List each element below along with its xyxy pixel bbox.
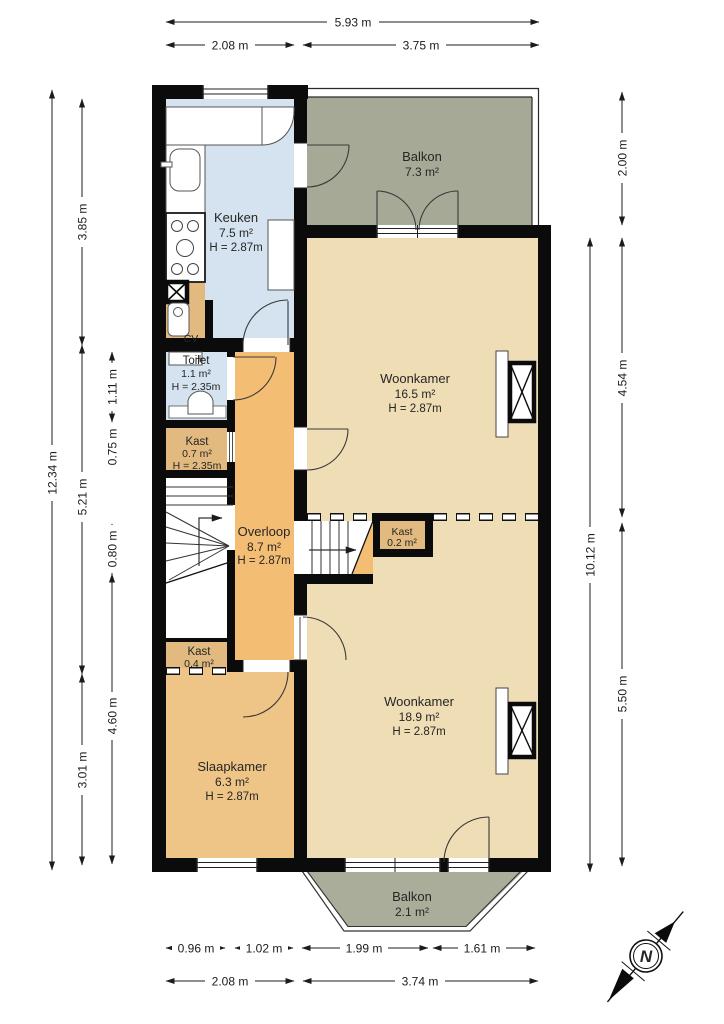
dim-bottom-outer-1: 3.74 m xyxy=(402,975,439,989)
cv-label: CV xyxy=(184,333,199,345)
overloop-area: 8.7 m² xyxy=(247,540,281,554)
keuken-area: 7.5 m² xyxy=(219,226,253,240)
dim-left-inner-2: 0.80 m xyxy=(106,531,120,568)
dim-bottom-outer-0: 2.08 m xyxy=(212,975,249,989)
stairs-opening xyxy=(227,505,235,550)
woonkamer-voor-door-opening xyxy=(294,427,307,470)
compass-north-icon: N xyxy=(595,901,695,1012)
kast-07-name: Kast xyxy=(185,436,209,448)
dim-right-total: 10.12 m xyxy=(584,533,598,576)
balkon-door-opening xyxy=(294,143,307,188)
woonkamer-achter-window xyxy=(345,858,440,872)
woonkamer-achter-height: H = 2.87m xyxy=(392,726,445,738)
faucet-icon xyxy=(161,162,172,167)
kast-04-area: 0.4 m² xyxy=(184,658,214,670)
keuken-door-opening xyxy=(243,338,290,352)
balkon-onder-door-opening xyxy=(448,858,489,872)
kast-02-area: 0.2 m² xyxy=(387,537,417,549)
kitchen-counter xyxy=(166,107,262,145)
dim-bottom-inner-2: 1.99 m xyxy=(346,942,383,956)
woonkamer-achter-name: Woonkamer xyxy=(384,694,455,709)
slaapkamer-height: H = 2.87m xyxy=(205,791,258,803)
sink-icon xyxy=(170,149,200,191)
dim-left-inner-3: 4.60 m xyxy=(106,698,120,735)
kitchen-appliance xyxy=(268,220,294,290)
dim-left-inner-0: 1.11 m xyxy=(106,369,120,405)
floorplan-drawing: Balkon 7.3 m² Keuken 7.5 m² H = 2.87m To… xyxy=(0,0,724,1024)
dim-top-seg-1: 3.75 m xyxy=(403,39,440,53)
dim-bottom-inner-3: 1.61 m xyxy=(464,942,501,956)
chimney-niche-achter xyxy=(496,688,508,774)
keuken-height: H = 2.87m xyxy=(209,242,262,254)
balkon-onder-area: 2.1 m² xyxy=(395,905,429,919)
balkon-onder-name: Balkon xyxy=(392,889,432,904)
slaapkamer-area: 6.3 m² xyxy=(215,775,249,789)
dim-left-mid-0: 3.85 m xyxy=(76,204,90,241)
woonkamer-achter-area: 18.9 m² xyxy=(399,710,440,724)
dim-left-mid-2: 3.01 m xyxy=(76,752,90,789)
toilet-bowl-icon xyxy=(188,391,213,414)
woonkamer-voor-height: H = 2.87m xyxy=(388,403,441,415)
keuken-name: Keuken xyxy=(214,210,258,225)
slaapkamer-window xyxy=(197,858,257,872)
overloop-name: Overloop xyxy=(238,524,291,539)
balkon-boven-area: 7.3 m² xyxy=(405,165,439,179)
slaapkamer-door-opening xyxy=(243,660,290,672)
keuken-window xyxy=(203,85,268,99)
overloop-height: H = 2.87m xyxy=(237,555,290,567)
dim-top-seg-0: 2.08 m xyxy=(212,39,249,53)
dim-bottom-inner-0: 0.96 m xyxy=(178,942,215,956)
toilet-area: 1.1 m² xyxy=(181,368,211,380)
dim-left-inner-1: 0.75 m xyxy=(106,429,120,466)
woonkamer-voor-name: Woonkamer xyxy=(380,371,451,386)
woonkamer-voor-area: 16.5 m² xyxy=(395,387,436,401)
stairs-floor xyxy=(166,478,227,638)
dim-right-inner-0: 2.00 m xyxy=(616,140,630,177)
compass-north-label: N xyxy=(640,947,653,966)
balkon-boven-name: Balkon xyxy=(402,149,442,164)
toilet-door-opening xyxy=(227,357,235,400)
dim-top-total: 5.93 m xyxy=(335,16,372,30)
slaapkamer-name: Slaapkamer xyxy=(197,759,267,774)
kast-07-opening xyxy=(227,432,235,462)
chimney-niche-voor xyxy=(496,351,508,437)
dim-left-mid-1: 5.21 m xyxy=(76,479,90,516)
woonkamer-achter-door-opening xyxy=(294,615,307,660)
toilet-height: H = 2.35m xyxy=(172,381,221,393)
kast-04-name: Kast xyxy=(187,646,211,658)
kast-07-height: H = 2.35m xyxy=(173,460,222,472)
dim-right-inner-2: 5.50 m xyxy=(616,676,630,713)
dim-bottom-inner-1: 1.02 m xyxy=(246,942,283,956)
kast-07-area: 0.7 m² xyxy=(182,448,212,460)
dim-right-inner-1: 4.54 m xyxy=(616,360,630,397)
dim-left-total: 12.34 m xyxy=(46,451,60,494)
toilet-name: Toilet xyxy=(183,355,211,367)
floorplan-page: Balkon 7.3 m² Keuken 7.5 m² H = 2.87m To… xyxy=(0,0,724,1024)
